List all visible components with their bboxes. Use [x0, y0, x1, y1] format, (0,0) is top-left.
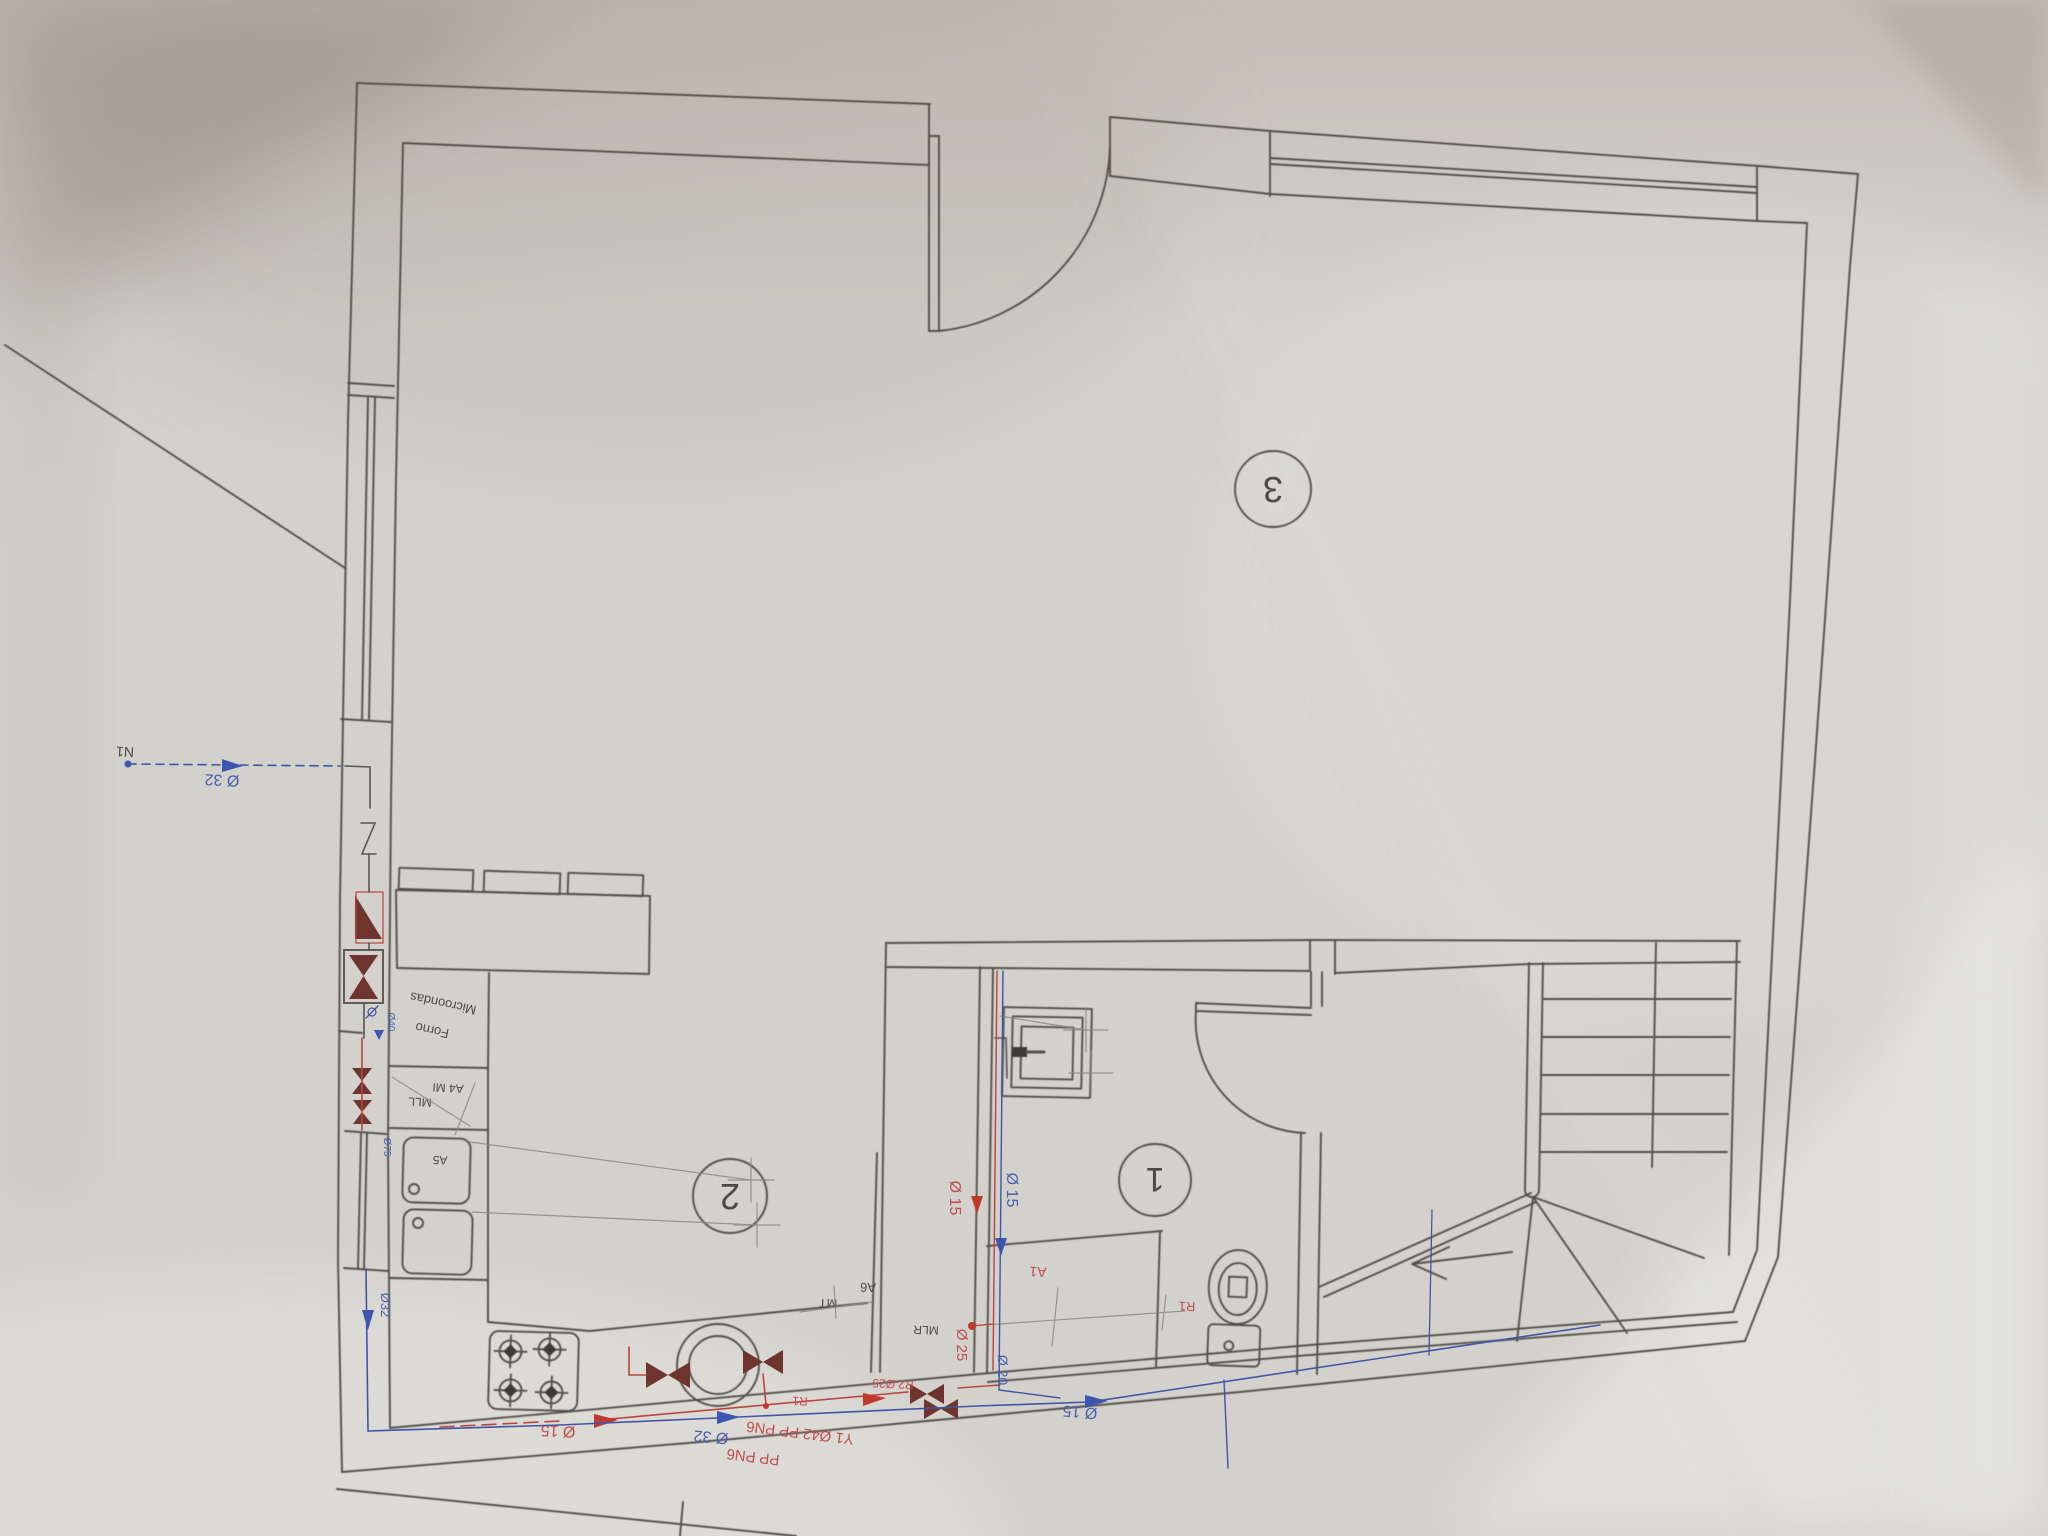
svg-text:Ø 15: Ø 15	[1003, 1173, 1020, 1208]
svg-text:1: 1	[1146, 1160, 1165, 1198]
svg-text:N1: N1	[115, 744, 134, 761]
svg-text:A4 MI: A4 MI	[432, 1080, 464, 1096]
svg-text:MLR: MLR	[913, 1323, 939, 1338]
svg-text:Ø32: Ø32	[378, 1293, 393, 1318]
svg-text:Ø 15: Ø 15	[1062, 1402, 1098, 1422]
svg-text:3: 3	[1263, 469, 1283, 510]
svg-text:Ø75: Ø75	[381, 1138, 392, 1157]
svg-text:2: 2	[720, 1176, 740, 1217]
svg-text:R1: R1	[1178, 1299, 1195, 1315]
svg-text:A6: A6	[860, 1280, 876, 1296]
svg-text:A5: A5	[432, 1153, 448, 1168]
svg-text:Ø 25: Ø 25	[953, 1329, 970, 1362]
svg-text:Ø 20: Ø 20	[995, 1355, 1011, 1386]
svg-text:Ø40: Ø40	[385, 1013, 396, 1032]
svg-text:R2 Ø25: R2 Ø25	[872, 1376, 914, 1392]
svg-text:Ø 15: Ø 15	[946, 1181, 963, 1216]
svg-text:MLL: MLL	[408, 1094, 432, 1109]
svg-text:Ø 32: Ø 32	[693, 1427, 729, 1447]
svg-text:R1: R1	[792, 1394, 808, 1409]
svg-text:Ø 32: Ø 32	[204, 770, 240, 789]
svg-text:A1: A1	[1029, 1264, 1047, 1281]
